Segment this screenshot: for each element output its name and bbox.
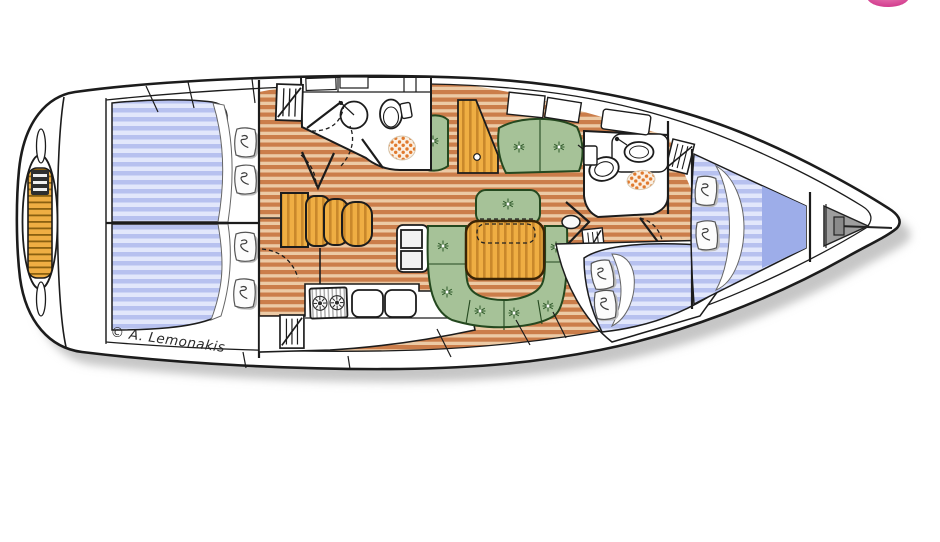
mast-post — [562, 216, 580, 229]
yacht-floor-plan: © A. Lemonakis — [0, 0, 940, 542]
pink-logo-fragment — [867, 0, 909, 7]
galley-sink — [385, 290, 416, 317]
stern-rail-starboard — [37, 282, 46, 316]
yacht-floor-plan-page: © A. Lemonakis — [0, 0, 940, 542]
cistern — [584, 146, 597, 165]
sink — [625, 142, 654, 162]
aft-berth-bottom — [112, 224, 223, 330]
galley-sink — [352, 290, 383, 317]
cabinet-knob — [474, 154, 481, 161]
hanging-locker — [280, 315, 304, 348]
nav-seat — [342, 202, 372, 246]
aft-berth-top — [112, 100, 227, 222]
stove — [309, 287, 347, 318]
pillow — [593, 289, 619, 322]
icebox — [397, 225, 432, 272]
pillow — [234, 128, 259, 159]
shower-mat — [389, 136, 416, 160]
pillow — [233, 279, 258, 310]
pillow — [694, 176, 720, 208]
stern-rail-port — [37, 129, 46, 163]
chart-table — [281, 193, 308, 247]
hanging-locker — [276, 84, 303, 121]
pillow — [234, 165, 259, 196]
pillow — [695, 220, 720, 252]
forward-head — [578, 121, 668, 217]
pillow — [234, 232, 258, 263]
